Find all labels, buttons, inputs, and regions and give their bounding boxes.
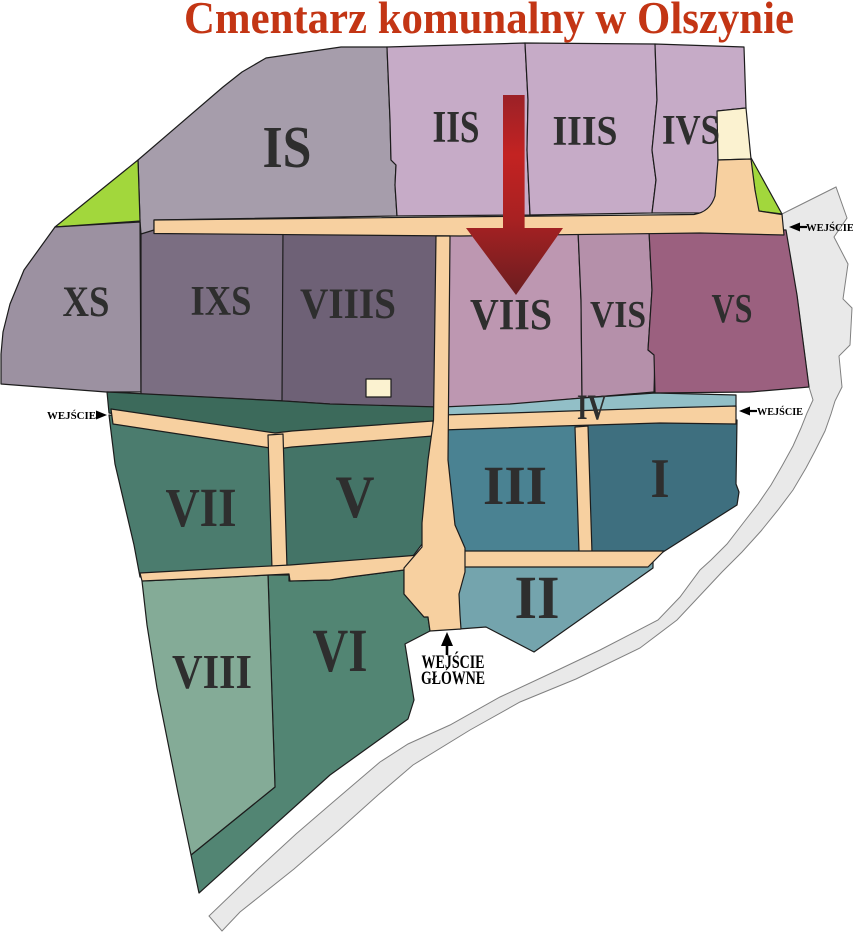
svg-text:IVS: IVS: [662, 108, 720, 154]
svg-text:VS: VS: [712, 285, 753, 331]
svg-text:IXS: IXS: [191, 279, 252, 325]
svg-text:WEJŚCIE: WEJŚCIE: [47, 410, 96, 422]
svg-text:VIIS: VIIS: [470, 290, 552, 339]
svg-text:IIIS: IIIS: [553, 109, 618, 155]
svg-text:I: I: [651, 448, 670, 510]
svg-text:XS: XS: [63, 279, 110, 326]
svg-text:VI: VI: [313, 618, 368, 685]
svg-text:WEJŚCIE: WEJŚCIE: [806, 222, 853, 234]
svg-text:VIS: VIS: [590, 294, 646, 336]
svg-text:VII: VII: [166, 477, 237, 538]
svg-text:IIS: IIS: [433, 102, 480, 152]
svg-text:VIII: VIII: [172, 644, 252, 699]
svg-text:GŁÓWNE: GŁÓWNE: [421, 667, 485, 689]
svg-text:Cmentarz komunalny w Olszynie: Cmentarz komunalny w Olszynie: [184, 0, 794, 43]
svg-text:V: V: [336, 464, 375, 530]
svg-text:IV: IV: [577, 387, 607, 427]
svg-text:WEJŚCIE: WEJŚCIE: [757, 406, 803, 418]
svg-text:III: III: [483, 455, 547, 516]
svg-text:II: II: [515, 565, 560, 632]
svg-text:VIIIS: VIIIS: [300, 281, 396, 328]
svg-text:IS: IS: [263, 114, 312, 180]
